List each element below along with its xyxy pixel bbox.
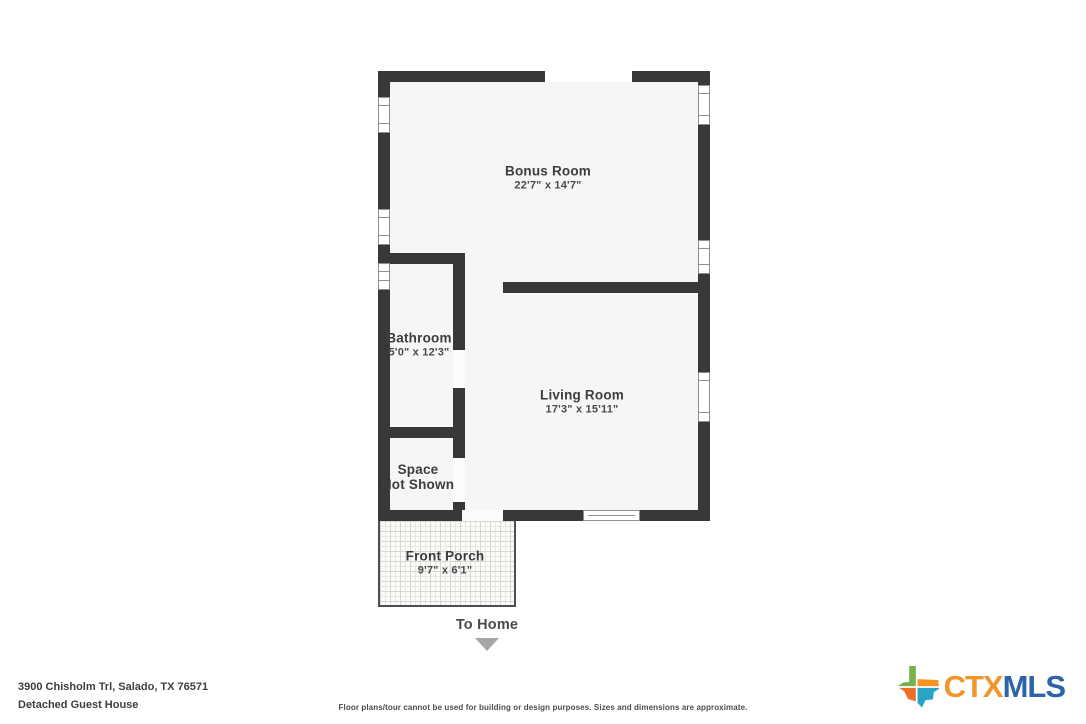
room-dimensions: 22'7" x 14'7" [505, 180, 591, 193]
logo-text-mls: MLS [1003, 664, 1065, 710]
room-label-living: Living Room 17'3" x 15'11" [540, 388, 624, 417]
wall-bathroom-right [453, 253, 465, 438]
window-right-1 [698, 85, 710, 125]
opening-top-wall [545, 71, 632, 82]
to-home-arrow-icon [475, 638, 499, 651]
opening-living-bonus [465, 282, 503, 293]
window-living [698, 372, 710, 422]
building-interior [384, 77, 704, 515]
room-dimensions: 5'0" x 12'3" [386, 347, 451, 360]
wall-left [378, 71, 390, 521]
opening-bathroom-door [453, 350, 465, 388]
opening-porch-door [462, 510, 503, 521]
wall-top [378, 71, 710, 82]
room-label-front-porch: Front Porch 9'7" x 6'1" [406, 549, 485, 578]
window-right-2 [698, 240, 710, 274]
room-label-bonus: Bonus Room 22'7" x 14'7" [505, 164, 591, 193]
room-label-space-not-shown: Space Not Shown [382, 462, 454, 492]
window-bathroom [378, 263, 390, 290]
property-address: 3900 Chisholm Trl, Salado, TX 76571 [18, 681, 208, 693]
logo-text-ctx: CTX [944, 664, 1003, 710]
room-name: Bathroom [386, 331, 451, 346]
wall-bathroom-top [378, 253, 465, 264]
room-dimensions: 17'3" x 15'11" [540, 404, 624, 417]
room-dimensions: 9'7" x 6'1" [406, 565, 485, 578]
to-home-label: To Home [456, 617, 518, 633]
window-left-1 [378, 97, 390, 133]
room-name-line2: Not Shown [382, 477, 454, 492]
room-name: Living Room [540, 388, 624, 403]
ctxmls-logo: CTXMLS [895, 664, 1065, 710]
room-name: Bonus Room [505, 164, 591, 179]
room-label-bathroom: Bathroom 5'0" x 12'3" [386, 331, 451, 360]
floor-plan: Bonus Room 22'7" x 14'7" Bathroom 5'0" x… [0, 0, 1086, 724]
window-bottom [583, 510, 640, 521]
wall-right [698, 71, 710, 521]
room-name: Front Porch [406, 549, 485, 564]
texas-state-icon [895, 665, 941, 709]
room-name-line1: Space [382, 462, 454, 477]
wall-bottom [378, 510, 710, 521]
opening-space-door [453, 458, 465, 502]
wall-bathroom-bottom [378, 427, 465, 438]
window-left-2 [378, 209, 390, 245]
